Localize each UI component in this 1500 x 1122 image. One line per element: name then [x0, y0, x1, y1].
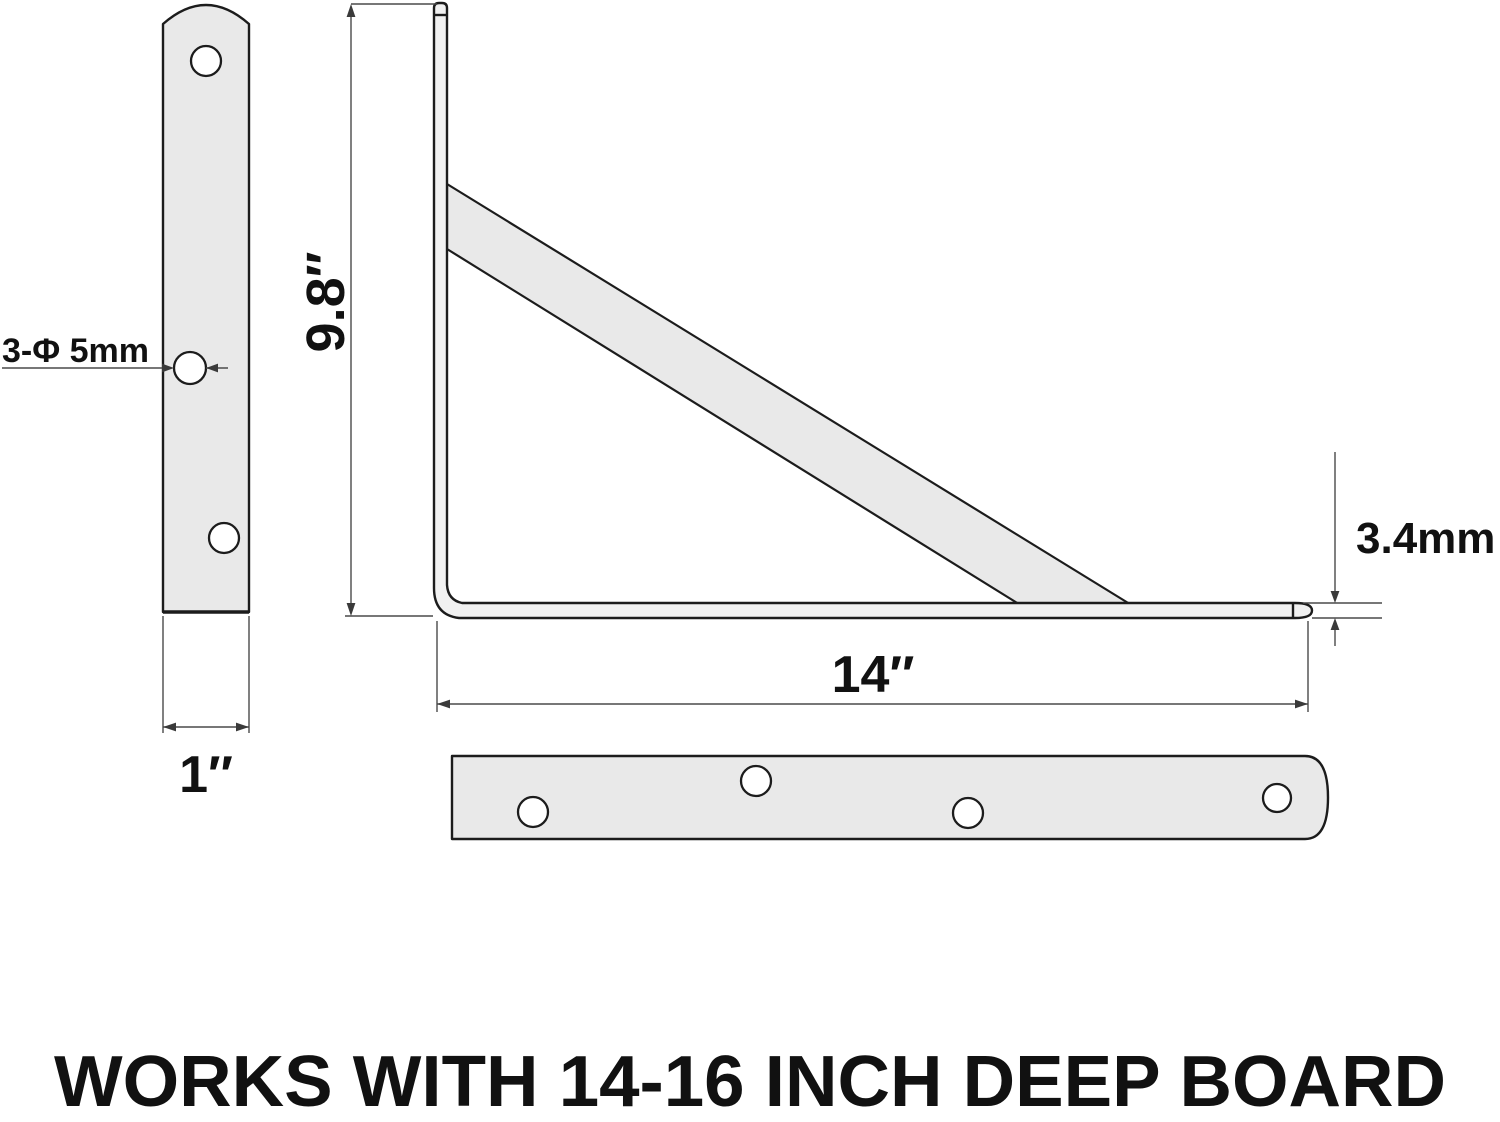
mounting-hole [953, 798, 983, 828]
dimension-arrow [1331, 591, 1340, 603]
wall-plate-side-view [163, 5, 249, 612]
wall-plate-outline [163, 5, 249, 612]
mounting-hole [191, 46, 221, 76]
mounting-hole [518, 797, 548, 827]
bracket-diagonal-brace [447, 184, 1129, 604]
mounting-hole [209, 523, 239, 553]
hole-spec-label: 3-Φ 5mm [2, 332, 149, 370]
arm-plan-view [452, 756, 1328, 839]
dimension-arrow [437, 700, 450, 709]
height-dimension: 9.8″ [296, 4, 437, 616]
technical-drawing: 3-Φ 5mm 1″ 9.8″ 14″ [0, 0, 1500, 1122]
mounting-hole [741, 766, 771, 796]
thickness-label: 3.4mm [1356, 514, 1495, 563]
dimension-arrow [347, 4, 356, 17]
thickness-dimension: 3.4mm [1303, 452, 1495, 646]
dimension-arrow [236, 723, 249, 732]
brace-outline [447, 184, 1129, 604]
mounting-hole [1263, 784, 1291, 812]
dimension-arrow [347, 603, 356, 616]
dimension-arrow [1331, 618, 1340, 630]
caption-text: WORKS WITH 14-16 INCH DEEP BOARD [54, 1042, 1446, 1122]
height-label: 9.8″ [296, 252, 356, 353]
dimension-arrow [163, 723, 176, 732]
dimension-arrow [1295, 700, 1308, 709]
plate-width-label: 1″ [179, 746, 233, 804]
arm-plan-outline [452, 756, 1328, 839]
arm-length-dimension: 14″ [437, 621, 1308, 712]
mounting-hole [174, 352, 206, 384]
plate-width-dimension: 1″ [163, 616, 249, 804]
arm-length-label: 14″ [832, 646, 915, 704]
